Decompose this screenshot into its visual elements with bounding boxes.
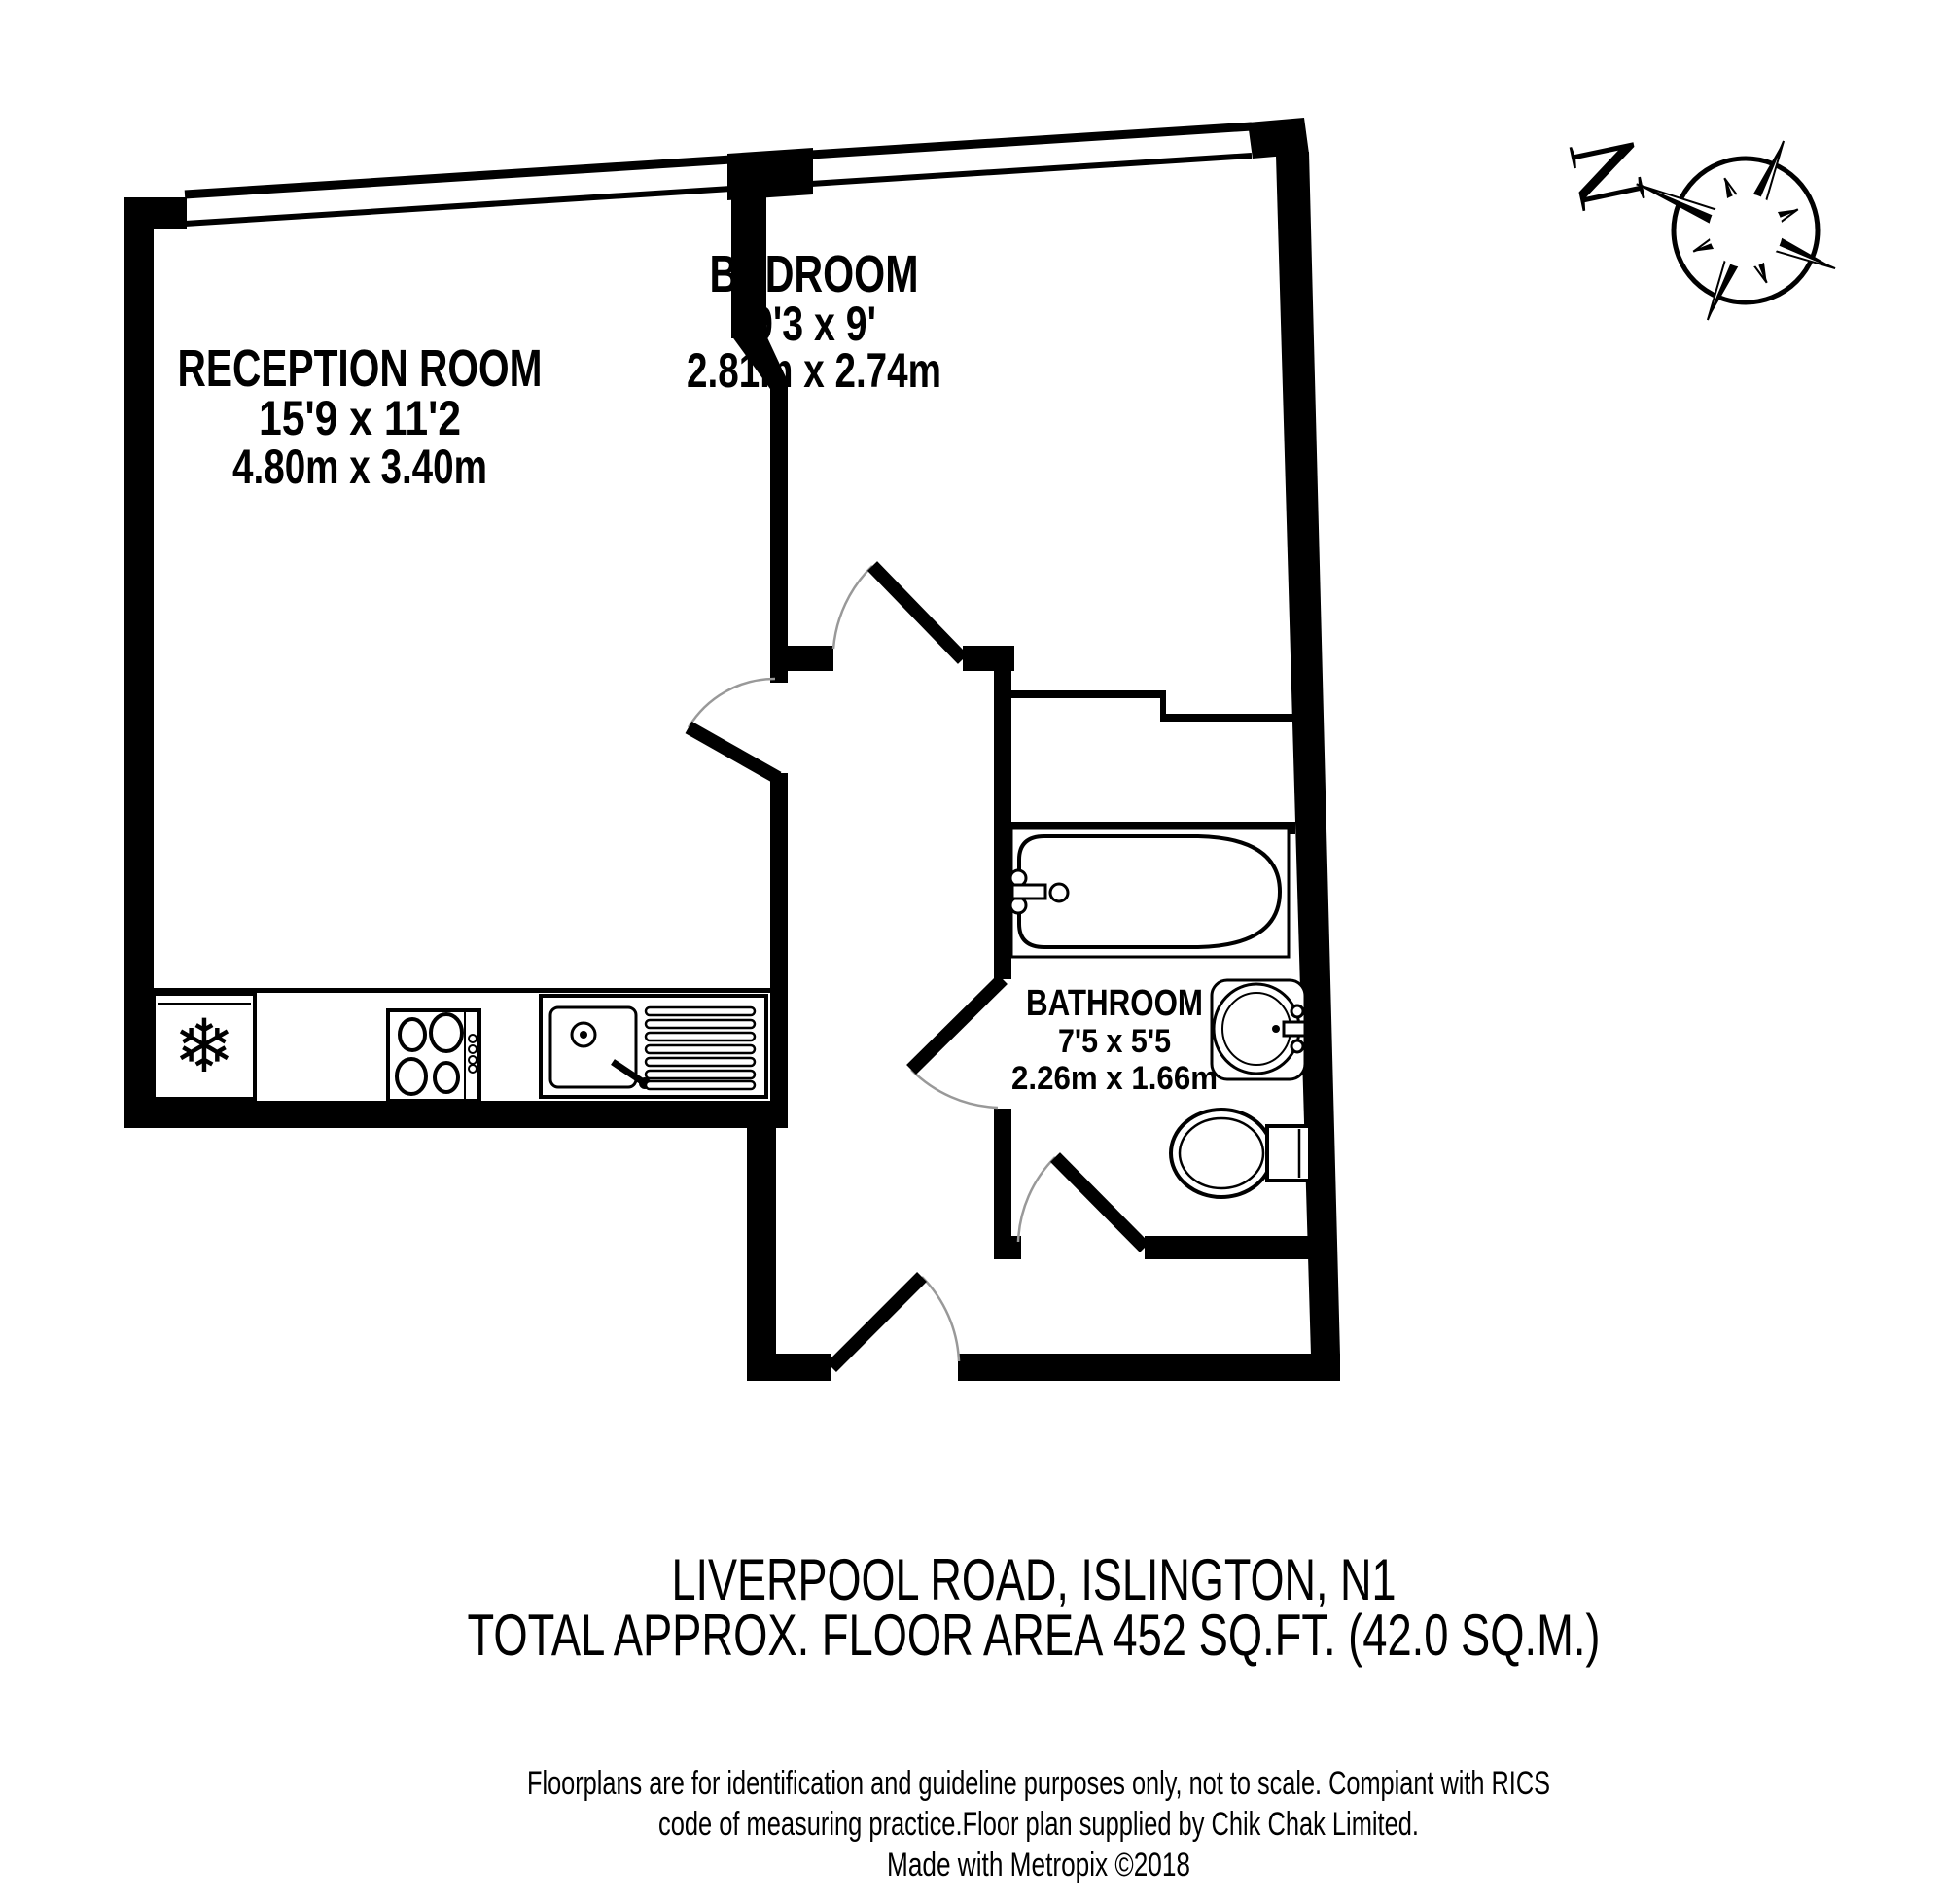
bath-icon — [1010, 829, 1289, 957]
north-label: N — [1546, 127, 1667, 219]
bathroom-door — [911, 979, 1003, 1108]
bathroom-imperial: 7'5 x 5'5 — [1058, 1023, 1171, 1060]
kitchen: ❄ — [154, 988, 770, 1101]
reception-imperial: 15'9 x 11'2 — [259, 391, 461, 445]
hob-icon — [388, 1010, 479, 1101]
hall-left-wall — [747, 1128, 776, 1381]
wc-door-jamb — [1011, 1236, 1021, 1259]
basin-icon — [1212, 980, 1305, 1079]
footer: LIVERPOOL ROAD, ISLINGTON, N1 TOTAL APPR… — [468, 1547, 1601, 1884]
bedroom-window — [811, 126, 1252, 184]
bedroom-name: BEDROOM — [710, 245, 919, 303]
sink-icon — [541, 996, 766, 1097]
reception-window — [185, 159, 731, 224]
room-labels: RECEPTION ROOM 15'9 x 11'2 4.80m x 3.40m… — [178, 245, 1219, 1097]
bathroom-metric: 2.26m x 1.66m — [1011, 1060, 1218, 1097]
bathroom-name: BATHROOM — [1026, 983, 1203, 1024]
bathroom-left-wall-upper — [994, 661, 1011, 979]
bedroom-metric: 2.81m x 2.74m — [687, 343, 941, 398]
floorplan: ❄ — [0, 0, 1945, 1904]
disclaimer-line1: Floorplans are for identification and gu… — [527, 1765, 1550, 1802]
top-left-pillar — [124, 197, 187, 229]
fridge-freezer-icon: ❄ — [154, 994, 255, 1099]
toilet-icon — [1171, 1110, 1310, 1197]
area-line: TOTAL APPROX. FLOOR AREA 452 SQ.FT. (42.… — [468, 1603, 1601, 1668]
disclaimer-line2: code of measuring practice.Floor plan su… — [658, 1806, 1419, 1843]
divider-wall-mid — [770, 381, 788, 683]
bathroom-left-wall-lower — [994, 1109, 1011, 1259]
freezer-snowflake-icon: ❄ — [173, 1005, 235, 1088]
left-wall — [124, 197, 154, 1128]
bottom-wall-right — [958, 1354, 1340, 1381]
reception-door — [689, 679, 778, 778]
drainer-slats — [646, 1007, 755, 1089]
wc-door — [1018, 1157, 1145, 1248]
entrance-door — [831, 1277, 959, 1367]
partition-line-b — [1160, 714, 1296, 722]
top-middle-pillar — [727, 148, 813, 200]
disclaimer-line3: Made with Metropix ©2018 — [887, 1847, 1190, 1884]
bedroom-bottom-wall-left — [786, 646, 833, 671]
divider-wall-below-door — [770, 773, 788, 1104]
compass-rose: N — [1546, 126, 1835, 325]
bedroom-door — [833, 566, 963, 659]
partition-line-a — [1011, 690, 1164, 698]
reception-metric: 4.80m x 3.40m — [232, 440, 487, 494]
reception-name: RECEPTION ROOM — [178, 339, 543, 398]
bottom-wall-left — [747, 1354, 831, 1381]
bathroom-south-wall — [1145, 1236, 1311, 1259]
reception-bottom-wall — [124, 1101, 788, 1128]
top-right-pillar — [1248, 118, 1309, 159]
